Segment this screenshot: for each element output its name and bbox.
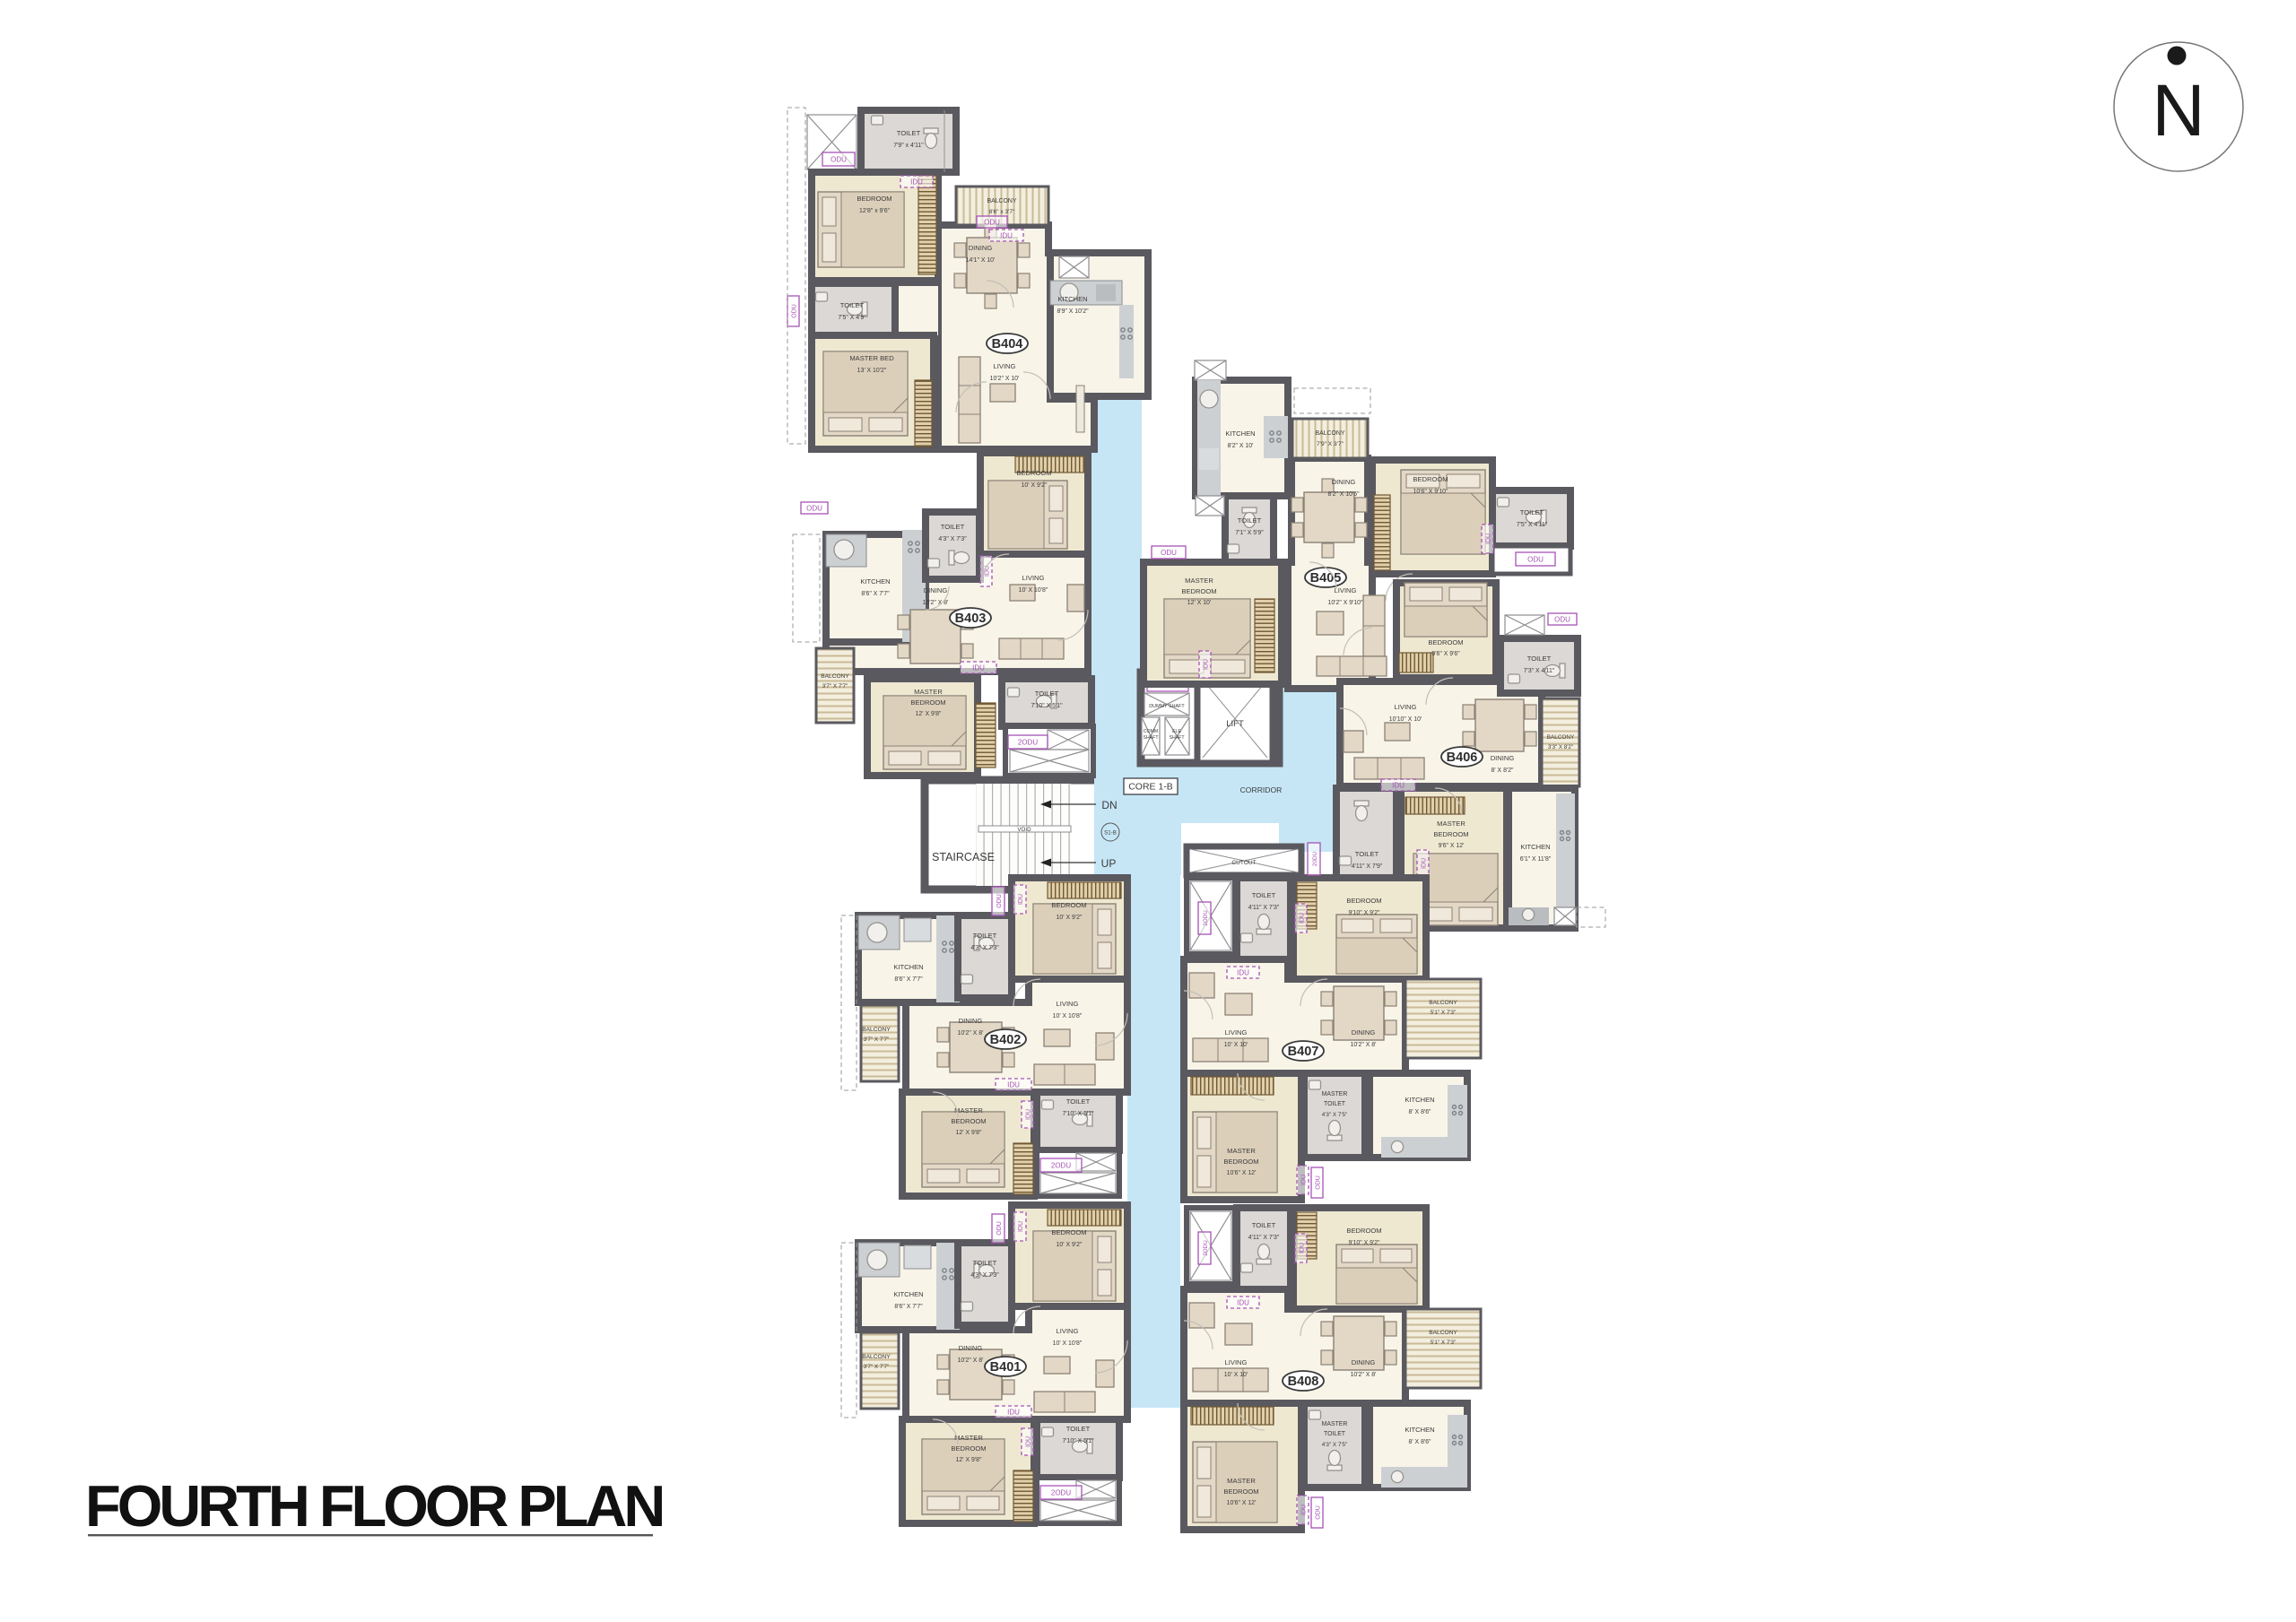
- svg-text:MASTER: MASTER: [1185, 577, 1213, 585]
- svg-text:12' X 10': 12' X 10': [1187, 600, 1211, 606]
- svg-text:BEDROOM: BEDROOM: [1223, 1158, 1258, 1166]
- svg-text:LIVING: LIVING: [1335, 586, 1357, 594]
- svg-text:ODU: ODU: [791, 304, 797, 318]
- svg-text:4'3" X 7'3": 4'3" X 7'3": [938, 536, 967, 542]
- svg-text:8'6" x 3'7": 8'6" x 3'7": [989, 209, 1015, 215]
- svg-text:8'6" X 7'7": 8'6" X 7'7": [861, 591, 890, 597]
- svg-text:IDU: IDU: [984, 566, 990, 577]
- svg-text:B405: B405: [1310, 571, 1342, 585]
- svg-text:7'3" X 4'11": 7'3" X 4'11": [1524, 668, 1555, 674]
- svg-text:KITCHEN: KITCHEN: [1520, 843, 1550, 851]
- svg-text:9'6" X 9'6": 9'6" X 9'6": [1431, 651, 1460, 657]
- svg-text:BALCONY: BALCONY: [1316, 430, 1345, 437]
- svg-text:8'9" X 10'2": 8'9" X 10'2": [1057, 308, 1089, 315]
- svg-text:DINING: DINING: [969, 244, 993, 252]
- svg-text:B402: B402: [990, 1033, 1022, 1047]
- svg-text:KITCHEN: KITCHEN: [1225, 429, 1255, 438]
- svg-text:DINING: DINING: [1352, 1028, 1376, 1037]
- svg-text:B404: B404: [992, 337, 1023, 351]
- svg-text:2ODU: 2ODU: [1051, 1161, 1071, 1169]
- svg-text:4'3" X 7'3": 4'3" X 7'3": [970, 945, 999, 951]
- svg-text:3'7" X 7'7": 3'7" X 7'7": [822, 683, 848, 690]
- svg-text:12' X 9'8": 12' X 9'8": [916, 711, 942, 717]
- svg-text:TOILET: TOILET: [1035, 690, 1059, 698]
- svg-text:LIVING: LIVING: [1057, 1000, 1079, 1008]
- svg-text:B403: B403: [955, 612, 987, 626]
- svg-text:TOILET: TOILET: [1238, 516, 1262, 525]
- svg-text:DUMMY SHAFT: DUMMY SHAFT: [1149, 704, 1185, 709]
- svg-text:14'1" X 10': 14'1" X 10': [966, 257, 996, 264]
- svg-text:LIVING: LIVING: [1395, 703, 1417, 711]
- svg-text:10' X 9'2": 10' X 9'2": [1022, 482, 1048, 489]
- svg-text:BEDROOM: BEDROOM: [951, 1117, 986, 1125]
- svg-text:CORE 1-B: CORE 1-B: [1128, 782, 1173, 793]
- svg-text:ODU: ODU: [1554, 615, 1570, 623]
- svg-text:3'7" X 7'7": 3'7" X 7'7": [864, 1037, 890, 1043]
- svg-text:KITCHEN: KITCHEN: [1405, 1096, 1434, 1104]
- svg-text:IDU: IDU: [1237, 968, 1249, 976]
- svg-text:S1-B: S1-B: [1104, 830, 1117, 837]
- svg-text:IDU: IDU: [1421, 858, 1427, 869]
- svg-text:BALCONY: BALCONY: [1429, 1000, 1457, 1006]
- svg-text:BEDROOM: BEDROOM: [910, 698, 945, 707]
- svg-text:12'8" x 9'6": 12'8" x 9'6": [859, 208, 891, 214]
- svg-text:SHAFT: SHAFT: [1143, 735, 1159, 741]
- svg-text:UP: UP: [1101, 857, 1117, 870]
- svg-text:BEDROOM: BEDROOM: [1428, 638, 1463, 646]
- svg-text:DINING: DINING: [1491, 754, 1515, 762]
- svg-text:MASTER: MASTER: [1437, 820, 1465, 828]
- svg-text:TOILET: TOILET: [897, 129, 921, 137]
- svg-text:IDU: IDU: [1203, 659, 1209, 670]
- svg-text:TOILET: TOILET: [840, 301, 865, 309]
- svg-text:KITCHEN: KITCHEN: [1057, 295, 1087, 303]
- svg-text:DINING: DINING: [924, 586, 948, 594]
- svg-text:10'6" X 9'10": 10'6" X 9'10": [1413, 489, 1448, 495]
- svg-text:KITCHEN: KITCHEN: [860, 577, 890, 585]
- svg-text:10'2" X 8': 10'2" X 8': [1351, 1042, 1377, 1048]
- svg-text:7'5" X 4'9": 7'5" X 4'9": [838, 315, 866, 321]
- svg-text:ODU: ODU: [831, 155, 847, 163]
- svg-text:IDU: IDU: [972, 664, 985, 672]
- svg-text:7'9" x 4'11": 7'9" x 4'11": [893, 143, 924, 149]
- svg-text:FOURTH FLOOR PLAN: FOURTH FLOOR PLAN: [85, 1473, 662, 1539]
- svg-text:10'2" X 10': 10'2" X 10': [990, 376, 1020, 382]
- svg-text:MASTER BED: MASTER BED: [849, 354, 894, 362]
- svg-text:7'1" X 5'9": 7'1" X 5'9": [1235, 530, 1264, 536]
- svg-text:BALCONY: BALCONY: [821, 673, 849, 680]
- svg-text:MASTER: MASTER: [954, 1106, 983, 1115]
- svg-text:10'2" X 9'10": 10'2" X 9'10": [1328, 600, 1363, 606]
- svg-text:CUTOUT: CUTOUT: [1231, 860, 1256, 866]
- svg-text:B407: B407: [1288, 1045, 1319, 1059]
- svg-text:ODU: ODU: [1161, 549, 1177, 557]
- svg-text:ODU: ODU: [806, 504, 822, 512]
- svg-text:8' X 8'6": 8' X 8'6": [1409, 1109, 1432, 1115]
- svg-text:VOID: VOID: [1017, 827, 1031, 833]
- svg-text:IDU: IDU: [1007, 1080, 1020, 1089]
- svg-text:IDU: IDU: [1300, 1175, 1307, 1185]
- svg-text:10'10" X 10': 10'10" X 10': [1389, 716, 1422, 723]
- svg-text:7'10" X 5'1": 7'10" X 5'1": [1062, 1111, 1094, 1117]
- svg-text:SHAFT: SHAFT: [1169, 735, 1185, 741]
- svg-text:MASTER: MASTER: [914, 688, 943, 696]
- svg-text:B401: B401: [990, 1360, 1022, 1375]
- svg-text:TOILET: TOILET: [1527, 655, 1552, 663]
- svg-text:BALCONY: BALCONY: [987, 198, 1017, 204]
- svg-text:8'2" X 10'6": 8'2" X 10'6": [1327, 491, 1360, 498]
- svg-text:5'1" X 7'3": 5'1" X 7'3": [1431, 1010, 1457, 1016]
- svg-text:DINING: DINING: [959, 1017, 983, 1025]
- svg-text:4'11" X 7'3": 4'11" X 7'3": [1248, 905, 1280, 911]
- svg-text:CORRIDOR: CORRIDOR: [1240, 785, 1283, 794]
- svg-text:LIVING: LIVING: [994, 362, 1016, 370]
- svg-text:TOILET: TOILET: [1324, 1101, 1346, 1107]
- svg-text:BALCONY: BALCONY: [1547, 734, 1575, 741]
- svg-text:BEDROOM: BEDROOM: [1016, 469, 1051, 477]
- svg-text:IDU: IDU: [1485, 533, 1492, 544]
- svg-text:BEDROOM: BEDROOM: [1181, 587, 1216, 595]
- svg-text:LIFT: LIFT: [1226, 719, 1244, 729]
- svg-text:10'6" X 12': 10'6" X 12': [1227, 1170, 1257, 1176]
- svg-text:KITCHEN: KITCHEN: [893, 963, 923, 971]
- svg-text:B406: B406: [1447, 750, 1478, 765]
- svg-text:10'2" X 8': 10'2" X 8': [958, 1030, 984, 1037]
- svg-text:7'5" X 4'11": 7'5" X 4'11": [1517, 522, 1548, 528]
- svg-text:BEDROOM: BEDROOM: [1346, 897, 1381, 905]
- svg-text:TOILET: TOILET: [1355, 850, 1379, 858]
- svg-text:3'3" X 8'2": 3'3" X 8'2": [1548, 744, 1573, 750]
- svg-text:ODU: ODU: [984, 218, 1000, 226]
- svg-text:MASTER: MASTER: [1227, 1147, 1256, 1155]
- svg-text:8'6" X 7'7": 8'6" X 7'7": [894, 976, 923, 983]
- svg-text:BEDROOM: BEDROOM: [1051, 901, 1086, 909]
- svg-text:IDU: IDU: [1392, 781, 1405, 789]
- svg-text:20DU: 20DU: [1312, 852, 1318, 867]
- svg-text:BEDROOM: BEDROOM: [857, 195, 891, 203]
- svg-text:BEDROOM: BEDROOM: [1433, 830, 1468, 838]
- svg-text:2ODU: 2ODU: [1018, 738, 1038, 746]
- svg-text:TOILET: TOILET: [941, 523, 965, 531]
- svg-text:MASTER: MASTER: [1322, 1091, 1348, 1097]
- svg-text:DN: DN: [1101, 799, 1117, 811]
- svg-text:7'9" X 3'7": 7'9" X 3'7": [1317, 441, 1344, 447]
- svg-text:10' X 9'2": 10' X 9'2": [1057, 915, 1083, 921]
- svg-text:IDU: IDU: [1000, 231, 1013, 239]
- svg-text:BEDROOM: BEDROOM: [1413, 475, 1448, 483]
- svg-text:ELE: ELE: [1172, 729, 1181, 734]
- svg-text:COMM: COMM: [1144, 729, 1158, 734]
- svg-text:ODU: ODU: [1527, 555, 1544, 563]
- svg-text:N: N: [2152, 70, 2205, 152]
- svg-text:TOILET: TOILET: [1066, 1097, 1091, 1106]
- svg-text:12' X 9'8": 12' X 9'8": [956, 1130, 982, 1136]
- svg-text:4'3" X 7'5": 4'3" X 7'5": [1322, 1112, 1348, 1118]
- svg-text:8'2" X 10': 8'2" X 10': [1228, 443, 1254, 449]
- svg-text:4'11" X 7'9": 4'11" X 7'9": [1352, 863, 1383, 870]
- svg-text:LIVING: LIVING: [1225, 1028, 1248, 1037]
- svg-text:B408: B408: [1288, 1375, 1319, 1389]
- svg-text:IDU: IDU: [1025, 1109, 1031, 1120]
- svg-text:TOILET: TOILET: [1252, 891, 1276, 899]
- svg-text:9'10" X 9'2": 9'10" X 9'2": [1348, 910, 1380, 916]
- svg-text:IDU: IDU: [910, 178, 923, 186]
- svg-text:7'10" X 5'1": 7'10" X 5'1": [1031, 703, 1063, 709]
- svg-text:2ODU: 2ODU: [1203, 910, 1209, 926]
- svg-text:10' X 10'8": 10' X 10'8": [1019, 587, 1048, 594]
- svg-text:6'1" X 11'8": 6'1" X 11'8": [1520, 856, 1552, 863]
- svg-text:DINING: DINING: [1332, 478, 1356, 486]
- svg-text:10' X 10'8": 10' X 10'8": [1053, 1013, 1083, 1019]
- svg-text:STAIRCASE: STAIRCASE: [932, 851, 995, 863]
- svg-text:TOILET: TOILET: [1520, 508, 1544, 516]
- svg-text:LIVING: LIVING: [1022, 574, 1045, 582]
- svg-text:13' X 10'2": 13' X 10'2": [857, 368, 887, 374]
- svg-text:BALCONY: BALCONY: [862, 1027, 891, 1033]
- svg-text:9'6" X 12': 9'6" X 12': [1439, 843, 1465, 849]
- svg-text:ODU: ODU: [996, 894, 1003, 908]
- svg-text:10' X 10': 10' X 10': [1224, 1042, 1248, 1048]
- svg-text:ODU: ODU: [1315, 1175, 1321, 1190]
- svg-text:TOILET: TOILET: [973, 932, 997, 940]
- svg-text:IDU: IDU: [1018, 894, 1024, 905]
- svg-text:8' X 8'2": 8' X 8'2": [1492, 768, 1515, 774]
- svg-text:IDU: IDU: [1299, 913, 1305, 924]
